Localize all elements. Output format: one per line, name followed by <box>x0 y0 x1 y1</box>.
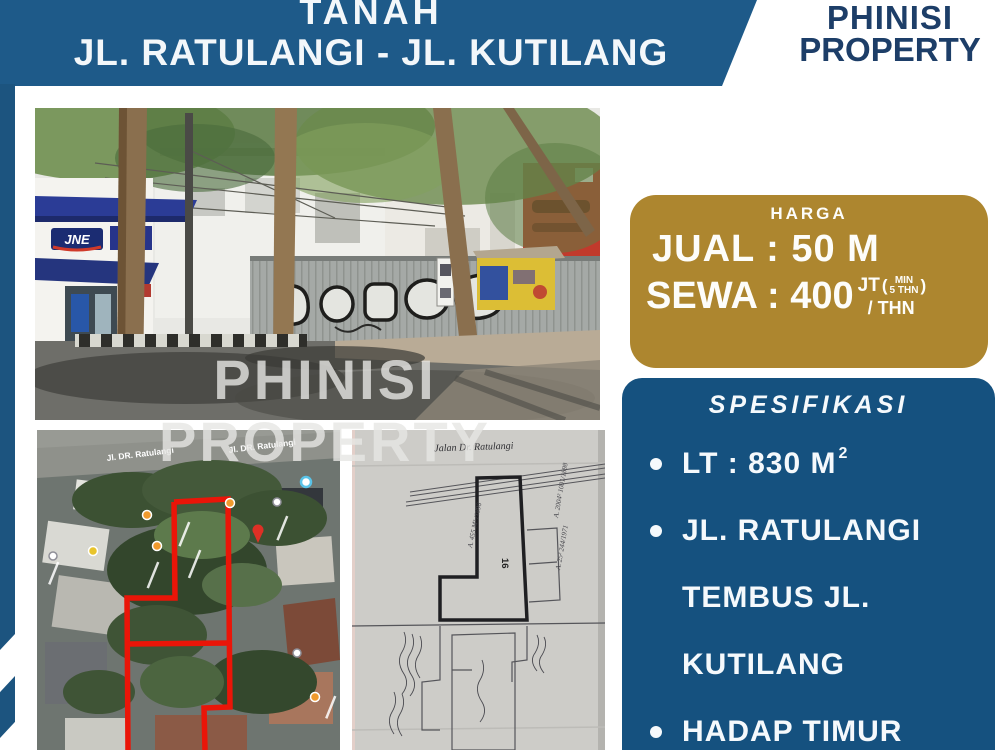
left-border-chevron <box>0 676 15 738</box>
street-photo: JNE <box>35 108 600 420</box>
satellite-map: Jl. DR. Ratulangi Jl. DR. Ratulangi <box>37 430 340 750</box>
bullet-dot <box>650 458 662 470</box>
property-flyer: TANAH JL. RATULANGI - JL. KUTILANG PHINI… <box>0 0 1000 750</box>
brand-name-bottom: PROPERTY <box>788 34 992 66</box>
page-title: TANAH <box>0 0 742 31</box>
certificate-illustration: Jalan Dr. Ratulangi 16 A. 455 M² /1896 A… <box>352 430 605 750</box>
rent-price-terms: JT ( MIN 5 THN ) / THN <box>858 275 928 319</box>
rent-price-row: SEWA : 400 JT ( MIN 5 THN ) / THN <box>646 277 988 319</box>
yellow-kiosk <box>473 246 565 310</box>
jne-sign-text: JNE <box>64 232 90 247</box>
sale-price: JUAL : 50 M <box>652 228 988 271</box>
square-meter-sup: 2 <box>838 445 847 463</box>
spec-item-street-2: TEMBUS JL. <box>622 564 995 631</box>
blue-marker <box>301 477 311 487</box>
road <box>35 330 600 420</box>
price-card: HARGA JUAL : 50 M SEWA : 400 JT ( MIN 5 … <box>630 195 988 368</box>
brand-logo: PHINISI PROPERTY <box>788 2 992 67</box>
satellite-map-illustration: Jl. DR. Ratulangi Jl. DR. Ratulangi <box>37 430 340 750</box>
utility-pole <box>185 113 193 351</box>
per-year-label: / THN <box>868 298 928 319</box>
left-border-band <box>0 84 15 650</box>
bullet-dot <box>650 726 662 738</box>
brand-name-top: PHINISI <box>788 2 992 34</box>
parcel-number: 16 <box>499 558 510 569</box>
page-subtitle: JL. RATULANGI - JL. KUTILANG <box>0 34 742 73</box>
specification-panel: SPESIFIKASI LT : 830 M 2 JL. RATULANGI T… <box>622 378 995 750</box>
spec-item-facing: HADAP TIMUR <box>622 698 995 750</box>
spec-item-land-area: LT : 830 M 2 <box>622 430 995 497</box>
spec-item-street-1: JL. RATULANGI <box>622 497 995 564</box>
minimum-term: MIN 5 THN <box>890 276 919 296</box>
title-block: TANAH JL. RATULANGI - JL. KUTILANG <box>0 0 742 73</box>
spec-heading: SPESIFIKASI <box>622 391 995 420</box>
curb-stripes <box>75 334 307 347</box>
land-certificate: Jalan Dr. Ratulangi 16 A. 455 M² /1896 A… <box>352 430 605 750</box>
spec-list: LT : 830 M 2 JL. RATULANGI TEMBUS JL. KU… <box>622 430 995 750</box>
rent-unit: JT <box>858 275 880 297</box>
rent-price: SEWA : 400 <box>646 277 854 315</box>
price-header: HARGA <box>630 204 988 224</box>
spec-item-street-3: KUTILANG <box>622 631 995 698</box>
street-photo-illustration: JNE <box>35 108 600 420</box>
bullet-dot <box>650 525 662 537</box>
